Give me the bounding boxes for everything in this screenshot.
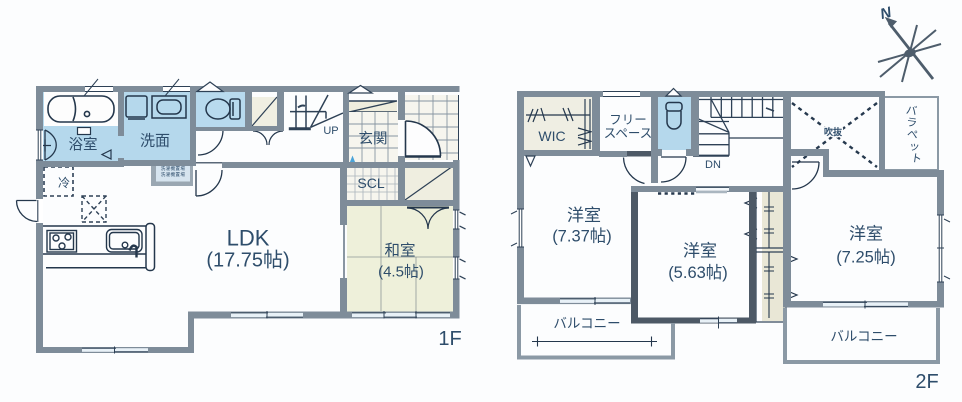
svg-text:吹抜: 吹抜: [824, 126, 843, 137]
svg-text:洋室: 洋室: [683, 242, 717, 261]
svg-text:(4.5帖): (4.5帖): [378, 264, 424, 281]
svg-text:(7.37帖): (7.37帖): [552, 227, 612, 246]
svg-text:スペース: スペース: [604, 127, 653, 141]
svg-text:和室: 和室: [384, 242, 415, 260]
svg-text:2F: 2F: [915, 371, 938, 393]
svg-text:洋室: 洋室: [567, 206, 601, 225]
svg-text:ト: ト: [910, 152, 923, 165]
svg-text:フリー: フリー: [609, 113, 647, 127]
svg-text:(7.25帖): (7.25帖): [836, 248, 896, 267]
svg-text:洗面: 洗面: [140, 133, 170, 150]
svg-text:洋室: 洋室: [849, 225, 883, 244]
svg-text:洗濯機置場: 洗濯機置場: [161, 171, 186, 178]
svg-text:SCL: SCL: [357, 175, 384, 191]
svg-text:バルコニー: バルコニー: [553, 316, 620, 331]
svg-text:冷: 冷: [58, 176, 70, 190]
svg-text:玄関: 玄関: [359, 131, 388, 148]
svg-text:(17.75帖): (17.75帖): [206, 249, 289, 272]
svg-text:(5.63帖): (5.63帖): [668, 263, 728, 282]
svg-text:洗濯機置場: 洗濯機置場: [161, 165, 186, 172]
svg-text:UP: UP: [323, 125, 338, 137]
svg-text:DN: DN: [705, 159, 721, 171]
svg-text:1F: 1F: [438, 328, 461, 350]
svg-text:バルコニー: バルコニー: [830, 329, 897, 344]
svg-text:浴室: 浴室: [69, 137, 98, 154]
svg-text:LDK: LDK: [227, 226, 270, 251]
svg-text:WIC: WIC: [538, 128, 565, 144]
svg-text:N: N: [878, 4, 894, 24]
